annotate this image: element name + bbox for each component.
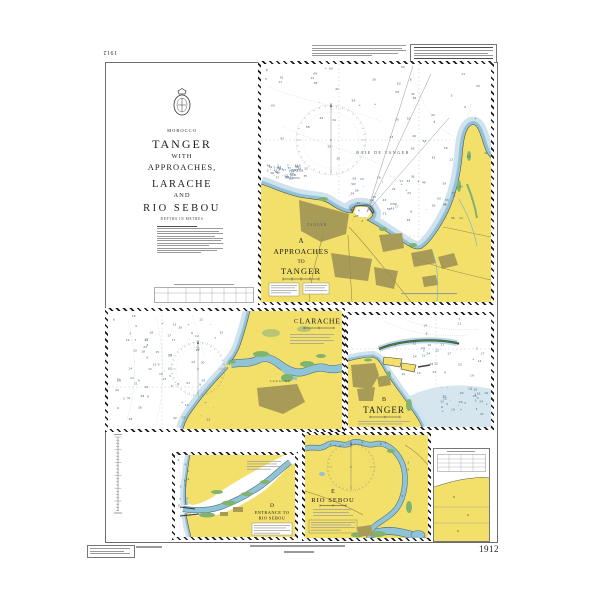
svg-text:7: 7: [179, 497, 181, 501]
svg-text:18: 18: [141, 349, 145, 353]
pond: [319, 472, 325, 476]
svg-text:12: 12: [459, 216, 463, 220]
svg-text:14: 14: [191, 360, 195, 364]
svg-text:49: 49: [313, 71, 317, 75]
svg-text:43: 43: [390, 135, 394, 139]
panel-title-line: APPROACHES: [273, 247, 328, 256]
svg-text:3: 3: [464, 401, 466, 405]
svg-text:32: 32: [304, 167, 308, 171]
svg-text:63: 63: [459, 184, 463, 188]
svg-text:11: 11: [144, 338, 148, 342]
svg-text:22: 22: [182, 416, 186, 420]
svg-text:19: 19: [484, 391, 488, 395]
svg-text:9: 9: [138, 378, 140, 382]
chart-title-line: RIO SEBOU: [121, 203, 243, 214]
svg-text:21: 21: [311, 76, 315, 80]
svg-text:8: 8: [266, 68, 268, 72]
sea-area-label: BAIE DE TANGER: [356, 150, 410, 155]
svg-text:3: 3: [475, 407, 477, 411]
chart-title-line: APPROACHES,: [121, 163, 243, 172]
publication-imprint: [87, 545, 135, 558]
svg-text:36: 36: [411, 175, 415, 179]
svg-text:26: 26: [372, 78, 376, 82]
svg-text:+: +: [324, 66, 327, 70]
panel-approaches-to-tanger: 435593211521121372316209171650175+505732…: [258, 61, 494, 305]
svg-text:43: 43: [467, 154, 471, 158]
chart-title-line: AND: [121, 193, 243, 200]
svg-text:10: 10: [159, 372, 163, 376]
svg-text:20: 20: [460, 391, 464, 395]
svg-text:9: 9: [191, 331, 193, 335]
metric-conversion-scale: [112, 434, 124, 514]
svg-text:9: 9: [158, 363, 160, 367]
svg-text:60: 60: [289, 176, 293, 180]
svg-text:3: 3: [477, 396, 479, 400]
panel-title: C LARACHE: [294, 317, 341, 326]
svg-text:11: 11: [148, 367, 152, 371]
svg-text:6: 6: [426, 332, 428, 336]
svg-text:42: 42: [274, 168, 278, 172]
svg-text:3: 3: [401, 494, 403, 498]
svg-text:2: 2: [177, 458, 179, 462]
svg-text:2: 2: [433, 120, 435, 124]
panel-note-box: [252, 523, 292, 535]
rio-sebou-entrance-map: 471127+789567 D ENTRANCE TO RIO SEBOU: [175, 455, 295, 537]
svg-text:18: 18: [129, 417, 133, 421]
svg-text:12: 12: [195, 334, 199, 338]
svg-text:13: 13: [172, 322, 176, 326]
svg-text:18: 18: [132, 314, 136, 318]
svg-text:43: 43: [383, 198, 387, 202]
svg-text:23: 23: [407, 191, 411, 195]
rio-sebou-map: 5394967442 E RIO SEBOU: [305, 435, 428, 538]
panel-title-text: RIO SEBOU: [311, 497, 355, 504]
svg-text:39: 39: [406, 218, 410, 222]
svg-text:42: 42: [432, 155, 436, 159]
built-up-area: [357, 525, 373, 537]
panel-title-text: LARACHE: [299, 317, 340, 326]
svg-text:6: 6: [453, 194, 455, 198]
approaches-map: 435593211521121372316209171650175+505732…: [261, 64, 491, 302]
svg-text:22: 22: [173, 416, 177, 420]
margin-note-text: [136, 546, 162, 548]
svg-text:36: 36: [451, 216, 455, 220]
svg-text:9: 9: [358, 208, 360, 212]
svg-text:59: 59: [443, 202, 447, 206]
tanger-map: 515131620221720234121924533191292512617+…: [348, 315, 491, 427]
svg-text:4: 4: [335, 443, 337, 447]
svg-text:14: 14: [423, 323, 427, 327]
panel-title-line: TANGER: [281, 266, 321, 276]
svg-text:21: 21: [480, 412, 484, 416]
panel-title-line: RIO SEBOU: [259, 516, 286, 521]
svg-text:20: 20: [395, 118, 399, 122]
svg-text:21: 21: [186, 381, 190, 385]
svg-text:62: 62: [397, 82, 401, 86]
svg-text:21: 21: [422, 354, 426, 358]
svg-text:7: 7: [458, 317, 460, 321]
svg-text:7: 7: [214, 336, 216, 340]
svg-text:24: 24: [115, 388, 119, 392]
svg-text:9: 9: [185, 462, 187, 466]
svg-text:14: 14: [128, 367, 132, 371]
svg-text:7: 7: [184, 483, 186, 487]
svg-text:11: 11: [461, 72, 465, 76]
city-label: TANGER: [307, 223, 327, 227]
svg-text:3: 3: [135, 324, 137, 328]
svg-text:4: 4: [330, 442, 332, 446]
svg-text:44: 44: [267, 164, 271, 168]
svg-text:14: 14: [417, 371, 421, 375]
svg-text:15: 15: [401, 372, 405, 376]
svg-text:9: 9: [199, 382, 201, 386]
svg-text:12: 12: [130, 376, 134, 380]
panel-letter: E: [331, 489, 335, 495]
svg-text:58: 58: [395, 90, 399, 94]
svg-text:+: +: [187, 322, 190, 326]
svg-text:6: 6: [380, 442, 382, 446]
svg-text:43: 43: [280, 136, 284, 140]
svg-text:2: 2: [277, 163, 279, 167]
svg-text:+: +: [374, 102, 377, 106]
svg-text:31: 31: [127, 396, 131, 400]
sand-spit: [225, 365, 231, 368]
svg-text:12: 12: [360, 177, 364, 181]
svg-text:60: 60: [271, 104, 275, 108]
svg-text:5: 5: [451, 93, 453, 97]
svg-text:56: 56: [352, 98, 356, 102]
svg-text:21: 21: [196, 346, 200, 350]
svg-text:22: 22: [435, 348, 439, 352]
svg-text:12: 12: [413, 341, 417, 345]
chart-country: MOROCCO: [121, 129, 243, 134]
svg-text:11: 11: [278, 80, 282, 84]
svg-text:6: 6: [113, 317, 115, 321]
svg-text:17: 17: [172, 338, 176, 342]
svg-text:23: 23: [440, 343, 444, 347]
panel-letter: C: [294, 319, 298, 325]
panel-title-line: ENTRANCE TO: [255, 510, 290, 515]
chart-depths-note: DEPTHS IN METRES: [121, 218, 243, 222]
svg-text:7: 7: [287, 164, 289, 168]
svg-text:30: 30: [201, 361, 205, 365]
svg-text:39: 39: [413, 96, 417, 100]
svg-text:43: 43: [391, 207, 395, 211]
svg-text:5: 5: [339, 444, 341, 448]
chart-title-line: WITH: [121, 154, 243, 161]
chart-title-block: MOROCCO TANGER WITH APPROACHES, LARACHE …: [121, 88, 243, 222]
admiralty-crest-icon: [169, 88, 195, 118]
chart-title-line: TANGER: [121, 138, 243, 151]
panel-title-text: TANGER: [363, 405, 405, 415]
svg-text:24: 24: [479, 399, 483, 403]
panel-letter: A: [298, 237, 303, 245]
nautical-chart-sheet: 1912 MOROCCO TANGER WITH APPROACHES, LAR…: [0, 0, 600, 600]
svg-text:+: +: [472, 357, 475, 361]
svg-text:+: +: [181, 400, 184, 404]
svg-text:20: 20: [443, 395, 447, 399]
svg-text:40: 40: [412, 134, 416, 138]
svg-text:16: 16: [477, 392, 481, 396]
svg-text:10: 10: [133, 349, 137, 353]
svg-text:18: 18: [149, 331, 153, 335]
svg-text:34: 34: [332, 118, 336, 122]
svg-text:13: 13: [162, 377, 166, 381]
svg-text:49: 49: [422, 180, 426, 184]
svg-text:11: 11: [186, 477, 190, 481]
panel-tanger: 515131620221720234121924533191292512617+…: [345, 312, 494, 430]
svg-text:15: 15: [219, 331, 223, 335]
agent-note: [284, 551, 314, 553]
svg-text:20: 20: [459, 400, 463, 404]
svg-text:58: 58: [306, 125, 310, 129]
svg-text:24: 24: [421, 346, 425, 350]
svg-text:4: 4: [446, 402, 448, 406]
svg-text:9: 9: [117, 406, 119, 410]
svg-text:17: 17: [167, 333, 171, 337]
svg-text:17: 17: [481, 351, 485, 355]
chart-title-line: LARACHE: [121, 179, 243, 190]
svg-text:4: 4: [417, 179, 419, 183]
svg-text:2: 2: [123, 396, 125, 400]
svg-text:16: 16: [427, 343, 431, 347]
svg-text:42: 42: [484, 151, 488, 155]
svg-text:11: 11: [458, 322, 462, 326]
svg-text:18: 18: [377, 175, 381, 179]
svg-text:8: 8: [178, 504, 180, 508]
svg-text:50: 50: [351, 182, 355, 186]
svg-text:5: 5: [265, 77, 267, 81]
svg-text:23: 23: [382, 212, 386, 216]
svg-text:35: 35: [303, 174, 307, 178]
svg-text:9: 9: [385, 441, 387, 445]
svg-text:17: 17: [447, 352, 451, 356]
svg-text:33: 33: [291, 169, 295, 173]
tidal-levels-table: [154, 284, 254, 304]
svg-text:58: 58: [299, 169, 303, 173]
svg-text:20: 20: [476, 84, 480, 88]
svg-text:38: 38: [313, 81, 317, 85]
svg-text:36: 36: [336, 156, 340, 160]
compass-rose: [296, 103, 366, 175]
svg-text:19: 19: [451, 407, 455, 411]
svg-text:5: 5: [147, 343, 149, 347]
svg-text:15: 15: [153, 363, 157, 367]
svg-text:36: 36: [411, 147, 415, 151]
svg-text:52: 52: [296, 176, 300, 180]
larache-map: LARACHE 92319310271521610182926221591226…: [108, 311, 342, 429]
svg-text:50: 50: [401, 65, 405, 69]
svg-text:9: 9: [147, 394, 149, 398]
svg-text:59: 59: [442, 182, 446, 186]
svg-text:2: 2: [407, 460, 409, 464]
svg-text:34: 34: [406, 179, 410, 183]
svg-text:8: 8: [410, 77, 412, 81]
copyright-note: [250, 545, 345, 547]
source-diagram-land: [434, 477, 489, 541]
svg-text:42: 42: [356, 201, 360, 205]
svg-text:27: 27: [275, 175, 279, 179]
svg-text:26: 26: [370, 198, 374, 202]
svg-text:2: 2: [129, 331, 131, 335]
svg-text:4: 4: [361, 441, 363, 445]
svg-text:21: 21: [392, 187, 396, 191]
svg-text:43: 43: [431, 113, 435, 117]
river-pool: [411, 531, 425, 539]
svg-text:28: 28: [355, 189, 359, 193]
svg-text:2: 2: [476, 346, 478, 350]
panel-letter: D: [270, 503, 274, 509]
svg-text:12: 12: [432, 370, 436, 374]
panel-rio-sebou: 5394967442 E RIO SEBOU: [302, 432, 431, 541]
svg-text:41: 41: [335, 87, 339, 91]
svg-text:9: 9: [407, 468, 409, 472]
svg-text:12: 12: [449, 157, 453, 161]
svg-text:+: +: [161, 321, 164, 325]
svg-text:+: +: [358, 103, 361, 107]
svg-text:12: 12: [168, 353, 172, 357]
svg-text:54: 54: [444, 146, 448, 150]
svg-text:41: 41: [280, 75, 284, 79]
svg-text:3: 3: [169, 374, 171, 378]
breakwater-head: [457, 342, 459, 344]
svg-text:29: 29: [201, 379, 205, 383]
chart-number: 1912: [479, 544, 499, 554]
svg-text:10: 10: [167, 367, 171, 371]
svg-text:14: 14: [185, 403, 189, 407]
svg-text:60: 60: [329, 66, 333, 70]
svg-text:17: 17: [395, 205, 399, 209]
panel-larache: LARACHE 92319310271521610182926221591226…: [105, 308, 345, 432]
svg-text:15: 15: [155, 350, 159, 354]
svg-text:59: 59: [352, 176, 356, 180]
panel-title-line: TO: [297, 259, 304, 265]
city-label: LARACHE: [270, 379, 291, 383]
top-margin-note: [312, 45, 406, 59]
svg-text:22: 22: [206, 418, 210, 422]
svg-text:6: 6: [184, 479, 186, 483]
svg-text:7: 7: [134, 338, 136, 342]
svg-text:18: 18: [430, 362, 434, 366]
svg-text:44: 44: [319, 116, 323, 120]
svg-text:2: 2: [361, 219, 363, 223]
svg-text:3: 3: [267, 169, 269, 173]
panel-entrance-rio-sebou: 471127+789567 D ENTRANCE TO RIO SEBOU: [172, 452, 298, 540]
svg-text:6: 6: [146, 355, 148, 359]
svg-text:53: 53: [284, 174, 288, 178]
svg-text:26: 26: [178, 326, 182, 330]
svg-text:19: 19: [470, 373, 474, 377]
svg-text:14: 14: [478, 359, 482, 363]
chart-notes-text: [157, 226, 223, 256]
svg-text:23: 23: [458, 363, 462, 367]
svg-text:8: 8: [177, 382, 179, 386]
source-data-inset: [433, 448, 490, 542]
svg-text:50: 50: [407, 116, 411, 120]
chart-number-top-left: 1912: [103, 49, 117, 55]
svg-text:19: 19: [349, 208, 353, 212]
svg-text:59: 59: [432, 203, 436, 207]
svg-text:5: 5: [180, 485, 182, 489]
svg-text:8: 8: [410, 209, 412, 213]
svg-text:19: 19: [126, 338, 130, 342]
svg-text:6: 6: [171, 384, 173, 388]
svg-text:15: 15: [468, 386, 472, 390]
svg-text:32: 32: [327, 144, 331, 148]
svg-text:27: 27: [390, 202, 394, 206]
svg-text:4: 4: [187, 469, 189, 473]
svg-text:23: 23: [117, 378, 121, 382]
svg-text:24: 24: [426, 352, 430, 356]
svg-text:28: 28: [140, 394, 144, 398]
svg-text:11: 11: [399, 179, 403, 183]
panel-letter: B: [382, 397, 386, 403]
svg-text:9: 9: [464, 105, 466, 109]
svg-text:22: 22: [434, 362, 438, 366]
svg-text:24: 24: [413, 355, 417, 359]
svg-text:16: 16: [144, 385, 148, 389]
svg-text:9: 9: [444, 371, 446, 375]
svg-text:12: 12: [199, 317, 203, 321]
svg-text:50: 50: [437, 196, 441, 200]
svg-text:26: 26: [138, 405, 142, 409]
